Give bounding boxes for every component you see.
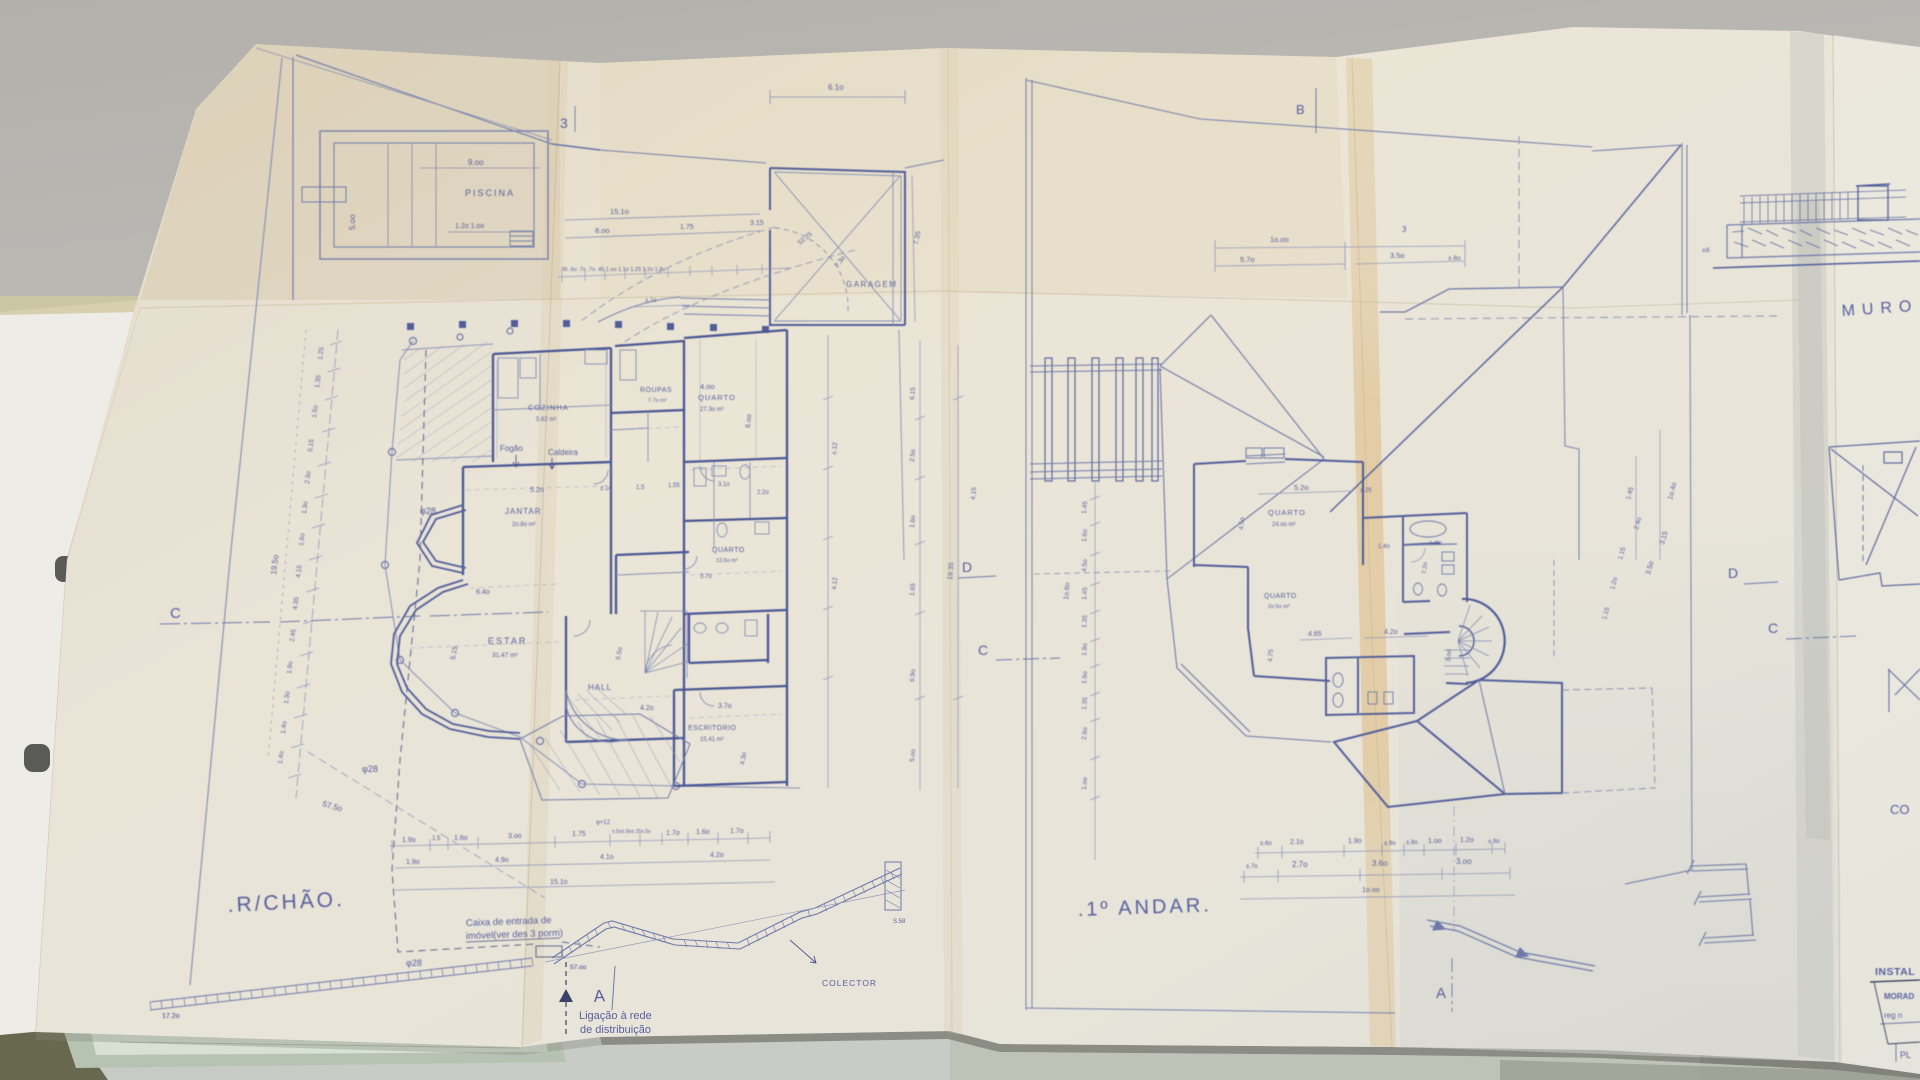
svg-text:2.1o: 2.1o bbox=[1290, 839, 1304, 846]
svg-text:3.15: 3.15 bbox=[750, 220, 764, 227]
svg-text:φ+12: φ+12 bbox=[596, 820, 611, 826]
svg-text:φ28: φ28 bbox=[406, 958, 422, 968]
svg-text:1.6o: 1.6o bbox=[454, 835, 468, 842]
svg-text:1.75: 1.75 bbox=[680, 224, 694, 231]
svg-text:3.oo: 3.oo bbox=[1445, 649, 1453, 663]
svg-text:JANTAR: JANTAR bbox=[505, 507, 542, 516]
svg-text:±.14: ±.14 bbox=[600, 486, 612, 492]
svg-text:Fogão: Fogão bbox=[500, 444, 523, 453]
svg-text:S.58: S.58 bbox=[893, 919, 906, 925]
svg-text:5.oo: 5.oo bbox=[909, 749, 917, 763]
svg-text:3.7o: 3.7o bbox=[718, 703, 732, 710]
svg-text:3.5o: 3.5o bbox=[1390, 251, 1405, 260]
svg-text:27.3o m²: 27.3o m² bbox=[700, 407, 724, 413]
svg-text:1.2o 1.oo: 1.2o 1.oo bbox=[455, 223, 484, 230]
svg-text:57.oo: 57.oo bbox=[570, 964, 587, 971]
svg-text:1.6o: 1.6o bbox=[696, 829, 710, 836]
svg-text:±8.: ±8. bbox=[1702, 247, 1711, 254]
svg-text:de distribuição: de distribuição bbox=[580, 1024, 651, 1036]
svg-text:QUARTO: QUARTO bbox=[712, 547, 745, 554]
svg-text:A: A bbox=[1436, 985, 1446, 1002]
svg-text:±.7o: ±.7o bbox=[1246, 864, 1258, 870]
svg-text:1.9o: 1.9o bbox=[1081, 643, 1089, 657]
svg-text:1.6o: 1.6o bbox=[909, 515, 917, 529]
svg-text:1o.oo: 1o.oo bbox=[1270, 235, 1289, 244]
svg-text:2.2o: 2.2o bbox=[757, 490, 769, 496]
svg-text:15.1o: 15.1o bbox=[610, 207, 629, 216]
svg-text:MORAD: MORAD bbox=[1884, 992, 1914, 1001]
svg-text:1o.oo: 1o.oo bbox=[1362, 887, 1380, 894]
svg-text:C: C bbox=[170, 605, 181, 622]
svg-text:6.4o: 6.4o bbox=[476, 589, 490, 596]
svg-text:4.75: 4.75 bbox=[1267, 649, 1275, 663]
svg-text:ESTAR: ESTAR bbox=[488, 636, 527, 646]
svg-text:±.12: ±.12 bbox=[831, 442, 839, 456]
svg-text:D: D bbox=[1728, 565, 1738, 581]
svg-text:1.9o: 1.9o bbox=[406, 859, 420, 866]
svg-text:1.7o: 1.7o bbox=[730, 828, 744, 835]
svg-text:QUARTO: QUARTO bbox=[1268, 508, 1306, 517]
svg-text:4.65: 4.65 bbox=[1308, 631, 1322, 638]
svg-text:1.35: 1.35 bbox=[1081, 615, 1089, 629]
svg-text:7.7o m²: 7.7o m² bbox=[648, 398, 667, 404]
svg-text:2.6o: 2.6o bbox=[1081, 727, 1089, 741]
svg-text:.1º ANDAR.: .1º ANDAR. bbox=[1077, 894, 1212, 921]
svg-text:Ligação à rede: Ligação à rede bbox=[579, 1010, 652, 1022]
svg-text:1.7o: 1.7o bbox=[666, 830, 680, 837]
svg-text:ESCRITORIO: ESCRITORIO bbox=[688, 725, 736, 732]
svg-text:φ28: φ28 bbox=[420, 506, 436, 516]
svg-text:4.5o: 4.5o bbox=[1238, 517, 1246, 531]
svg-text:7.2o: 7.2o bbox=[1422, 561, 1429, 574]
svg-text:A: A bbox=[593, 986, 606, 1006]
svg-text:±.6o: ±.6o bbox=[1260, 841, 1272, 847]
svg-text:1.55: 1.55 bbox=[668, 483, 680, 489]
svg-text:INSTAL: INSTAL bbox=[1875, 966, 1915, 978]
svg-text:13.5o m²: 13.5o m² bbox=[716, 558, 738, 564]
svg-text:4.9o: 4.9o bbox=[495, 857, 509, 864]
svg-text:4.2o: 4.2o bbox=[640, 705, 654, 712]
svg-text:5.82 m²: 5.82 m² bbox=[536, 417, 556, 423]
svg-text:COZINHA: COZINHA bbox=[528, 403, 569, 412]
svg-text:4.2o: 4.2o bbox=[1384, 629, 1398, 636]
svg-text:31.47 m²: 31.47 m² bbox=[492, 652, 518, 659]
svg-text:4.oo: 4.oo bbox=[700, 382, 715, 391]
svg-text:4.12: 4.12 bbox=[831, 577, 839, 591]
svg-text:1.5: 1.5 bbox=[636, 485, 645, 491]
svg-text:4.2o: 4.2o bbox=[710, 852, 724, 859]
svg-text:.95 .6o .7o .7o .45 1.oo 1.1o: .95 .6o .7o .7o .45 1.oo 1.1o 1.25 1.2o … bbox=[560, 267, 666, 273]
svg-text:2.5o: 2.5o bbox=[909, 449, 917, 463]
svg-text:6.oo: 6.oo bbox=[745, 414, 753, 428]
svg-text:GARAGEM: GARAGEM bbox=[846, 280, 897, 289]
svg-text:COLECTOR: COLECTOR bbox=[822, 978, 877, 988]
svg-text:reg n: reg n bbox=[1884, 1011, 1902, 1020]
svg-text:1.5: 1.5 bbox=[432, 836, 441, 842]
svg-text:8.oo: 8.oo bbox=[595, 226, 610, 235]
svg-text:6.1o: 6.1o bbox=[828, 83, 844, 92]
svg-text:4.5o: 4.5o bbox=[1081, 559, 1089, 573]
svg-text:5.oo: 5.oo bbox=[348, 214, 357, 230]
svg-text:24.oo m²: 24.oo m² bbox=[1272, 522, 1296, 528]
svg-text:1.9o: 1.9o bbox=[402, 837, 416, 844]
svg-text:2o.5o m²: 2o.5o m² bbox=[1268, 604, 1290, 610]
svg-text:PL: PL bbox=[1900, 1050, 1911, 1060]
svg-text:5.2o: 5.2o bbox=[1294, 483, 1309, 492]
svg-text:3.oo: 3.oo bbox=[1456, 857, 1472, 866]
svg-text:1.6o: 1.6o bbox=[1081, 671, 1089, 685]
svg-text:±.1o: ±.1o bbox=[645, 298, 657, 304]
svg-text:Caldeira: Caldeira bbox=[548, 448, 578, 457]
svg-text:3.7o: 3.7o bbox=[700, 574, 712, 580]
svg-text:6.15: 6.15 bbox=[909, 387, 917, 401]
svg-text:B: B bbox=[1296, 102, 1305, 117]
svg-text:1.9o: 1.9o bbox=[1348, 838, 1362, 845]
svg-text:4.15: 4.15 bbox=[970, 487, 978, 501]
svg-text:QUARTO: QUARTO bbox=[698, 393, 736, 402]
svg-text:15.1o: 15.1o bbox=[550, 879, 568, 886]
svg-text:2.7o: 2.7o bbox=[1292, 860, 1308, 869]
svg-text:1.45: 1.45 bbox=[1081, 587, 1089, 601]
svg-text:1.4o: 1.4o bbox=[1378, 544, 1390, 550]
svg-text:3: 3 bbox=[560, 115, 568, 131]
svg-text:2o.8o m²: 2o.8o m² bbox=[512, 522, 536, 528]
svg-text:ROUPAS: ROUPAS bbox=[640, 387, 672, 394]
svg-text:±.8o: ±.8o bbox=[1406, 840, 1418, 846]
svg-text:C: C bbox=[978, 642, 988, 658]
svg-text:5.7o: 5.7o bbox=[1240, 255, 1255, 264]
svg-text:1.35: 1.35 bbox=[1081, 697, 1089, 711]
svg-text:3.6o: 3.6o bbox=[1372, 859, 1388, 868]
svg-text:±.9o: ±.9o bbox=[1488, 839, 1500, 845]
svg-text:HALL: HALL bbox=[588, 683, 612, 692]
svg-text:5.2o: 5.2o bbox=[530, 487, 544, 494]
svg-text:17.2o: 17.2o bbox=[162, 1013, 180, 1020]
svg-text:4.1o: 4.1o bbox=[600, 854, 614, 861]
svg-text:D: D bbox=[962, 559, 972, 575]
svg-text:CO: CO bbox=[1890, 802, 1910, 817]
svg-text:3.oo: 3.oo bbox=[508, 833, 522, 840]
svg-text:C: C bbox=[1768, 620, 1778, 636]
svg-text:1.65: 1.65 bbox=[909, 583, 917, 597]
svg-text:±.9o: ±.9o bbox=[1384, 841, 1396, 847]
svg-text:1.2o: 1.2o bbox=[1460, 837, 1474, 844]
svg-text:15.41 m²: 15.41 m² bbox=[700, 737, 724, 743]
svg-text:φ28: φ28 bbox=[362, 764, 378, 774]
svg-text:1.75: 1.75 bbox=[572, 831, 586, 838]
svg-text:±.5o±.9o±.15±.5o: ±.5o±.9o±.15±.5o bbox=[612, 829, 651, 835]
svg-text:1.oo: 1.oo bbox=[1081, 777, 1089, 791]
svg-text:3: 3 bbox=[1402, 225, 1407, 234]
svg-text:±.25: ±.25 bbox=[1360, 488, 1372, 494]
svg-text:9.oo: 9.oo bbox=[468, 158, 484, 167]
svg-text:1.45: 1.45 bbox=[1081, 501, 1089, 515]
svg-text:1.oo: 1.oo bbox=[1428, 838, 1442, 845]
svg-text:QUARTO: QUARTO bbox=[1264, 593, 1297, 600]
svg-text:3.1o: 3.1o bbox=[718, 482, 730, 488]
svg-text:1.6o: 1.6o bbox=[1081, 529, 1089, 543]
svg-text:PISCINA: PISCINA bbox=[465, 188, 515, 198]
svg-text:6.9o: 6.9o bbox=[909, 669, 917, 683]
